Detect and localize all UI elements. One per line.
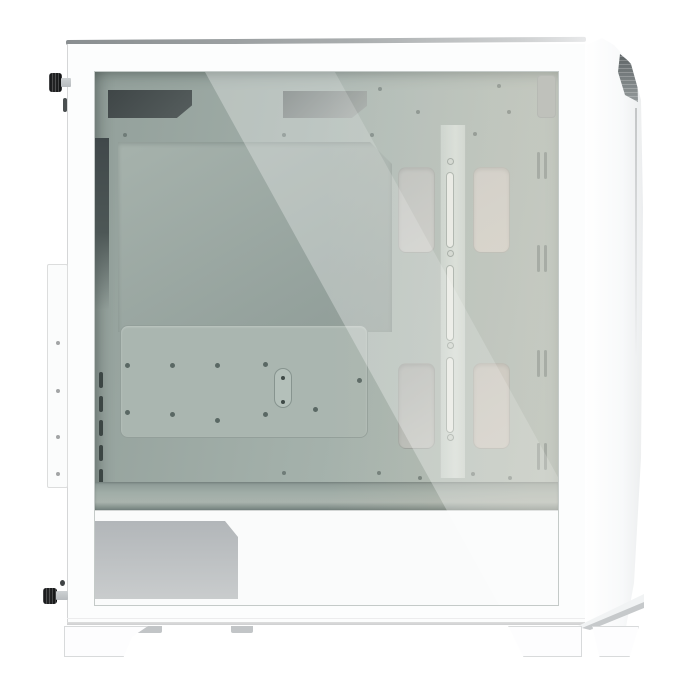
rear-vent-slit bbox=[99, 445, 103, 461]
bracket-hole bbox=[56, 435, 60, 439]
product-photo bbox=[0, 0, 700, 700]
thumbscrew-bottom-shaft bbox=[56, 591, 68, 600]
standoff-hole bbox=[313, 407, 318, 412]
bracket-hole bbox=[56, 341, 60, 345]
rear-io-bracket bbox=[47, 264, 68, 488]
chassis-seam-line bbox=[67, 618, 585, 619]
front-mesh-texture bbox=[618, 52, 640, 108]
rear-vent-slit bbox=[99, 420, 103, 436]
bracket-hole bbox=[56, 389, 60, 393]
panel-edge-hole bbox=[60, 580, 65, 586]
standoff-hole bbox=[170, 412, 175, 417]
chassis-bottom-edge bbox=[67, 622, 585, 625]
standoff-hole bbox=[263, 412, 268, 417]
bracket-hole bbox=[56, 472, 60, 476]
rear-vent-slit bbox=[99, 396, 103, 412]
cable-cutout-top-left bbox=[108, 90, 192, 118]
right-foot bbox=[505, 626, 582, 657]
panel-edge-slot bbox=[63, 98, 67, 112]
screw bbox=[281, 376, 285, 380]
screw-hole bbox=[282, 471, 286, 475]
thumbscrew-bottom bbox=[43, 588, 57, 604]
standoff-hole bbox=[125, 410, 130, 415]
left-foot bbox=[64, 626, 148, 657]
standoff-hole bbox=[215, 363, 220, 368]
standoff-hole bbox=[170, 363, 175, 368]
rear-vent-slit bbox=[99, 372, 103, 388]
pc-case bbox=[0, 0, 700, 700]
standoff-hole bbox=[125, 363, 130, 368]
rear-exhaust-strip bbox=[95, 138, 109, 310]
standoff-hole bbox=[263, 362, 268, 367]
psu-vent-mesh bbox=[95, 521, 238, 599]
foot-tab bbox=[231, 626, 253, 633]
front-panel-crease bbox=[635, 108, 637, 358]
tempered-glass-panel bbox=[95, 72, 558, 605]
thumbscrew-top-shaft bbox=[61, 78, 71, 87]
front-panel bbox=[585, 38, 647, 627]
standoff-hole bbox=[215, 418, 220, 423]
front-foot bbox=[592, 626, 639, 657]
screw bbox=[281, 400, 285, 404]
screw-hole bbox=[123, 133, 127, 137]
